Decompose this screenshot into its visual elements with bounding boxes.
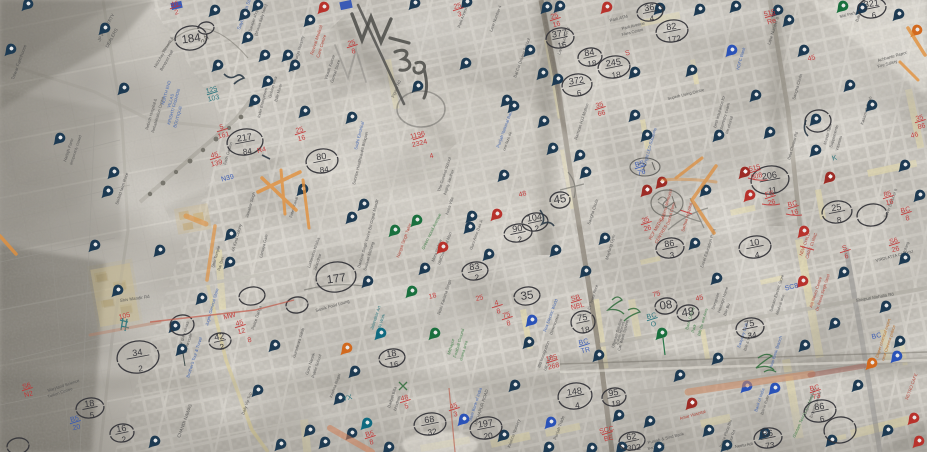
svg-text:20: 20	[483, 431, 494, 441]
svg-text:18: 18	[611, 399, 622, 409]
svg-text:48: 48	[681, 306, 695, 320]
svg-text:08: 08	[659, 299, 673, 313]
svg-text:302: 302	[627, 442, 642, 452]
svg-text:45: 45	[553, 193, 567, 207]
svg-text:73: 73	[765, 440, 776, 450]
svg-text:34: 34	[747, 330, 758, 340]
svg-text:16: 16	[389, 360, 400, 370]
svg-text:32: 32	[427, 427, 438, 437]
svg-text:35: 35	[520, 289, 534, 303]
svg-text:16: 16	[557, 40, 568, 50]
svg-text:18: 18	[611, 70, 622, 80]
svg-text:84: 84	[319, 165, 330, 175]
svg-text:18: 18	[580, 325, 591, 335]
svg-text:18: 18	[587, 59, 598, 69]
svg-text:84: 84	[242, 146, 253, 156]
